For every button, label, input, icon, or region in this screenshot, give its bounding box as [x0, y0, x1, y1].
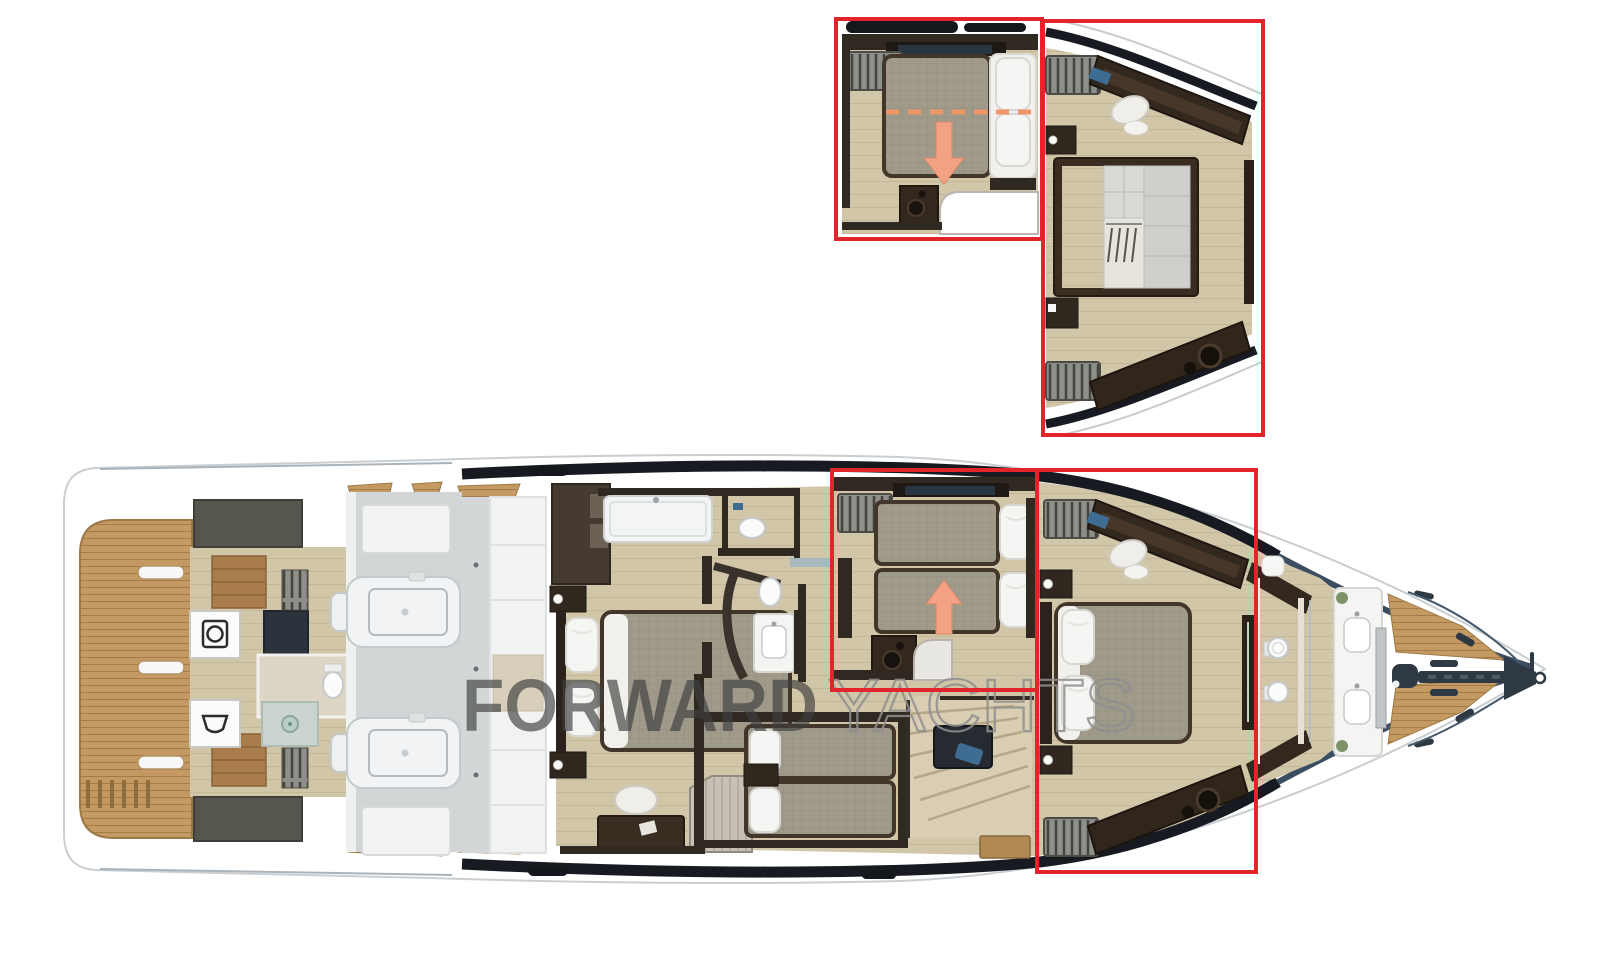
- deck-hatch: [862, 870, 896, 879]
- engine-room-locker: [362, 807, 450, 855]
- cistern: [733, 503, 743, 510]
- crew-wardrobe: [194, 797, 302, 841]
- crew-wardrobe: [194, 500, 302, 547]
- plant: [1336, 740, 1348, 752]
- shower-seat: [1262, 556, 1284, 576]
- swim-platform: [80, 520, 192, 838]
- crew-locker: [282, 748, 308, 788]
- plant: [1336, 592, 1348, 604]
- toilet-icon: [323, 664, 343, 698]
- deck-hatch: [528, 866, 568, 876]
- platform-handle: [138, 661, 184, 674]
- washing-machine: [190, 611, 240, 658]
- deck-hatch: [964, 23, 1026, 32]
- platform-handle: [138, 756, 184, 769]
- twin-bed: [876, 502, 1032, 564]
- toilet-icon: [759, 578, 781, 606]
- guest-bed: [746, 782, 894, 836]
- corridor-notch: [940, 192, 1038, 234]
- laundry-sink: [190, 700, 240, 747]
- deck-hatch: [528, 466, 568, 476]
- watermark-secondary: YACHTS: [828, 664, 1136, 747]
- crew-locker: [282, 570, 308, 610]
- engine-port: [331, 572, 460, 647]
- crew-quarters: [190, 500, 368, 841]
- windshield-base: [1376, 628, 1386, 728]
- inset-twin-convertible: [834, 17, 1044, 241]
- crew-counter: [264, 611, 308, 657]
- engine-room-locker: [362, 505, 450, 553]
- inset-master-dressing: [1041, 18, 1265, 438]
- bow-vanity: [1334, 588, 1382, 756]
- platform-handle: [138, 566, 184, 579]
- engine-starboard: [331, 713, 460, 788]
- yacht-floorplan-canvas: FORWARD YACHTS: [0, 0, 1600, 972]
- twin-closet: [838, 558, 852, 638]
- convertible-double-bed: [884, 54, 1036, 190]
- guest-nightstand: [744, 764, 778, 786]
- faucet: [653, 497, 659, 503]
- inset-nightstand: [1046, 298, 1078, 328]
- inset-nightstand: [900, 186, 938, 224]
- stair-drawer: [980, 836, 1030, 858]
- walk-in-wardrobe: [1054, 158, 1198, 296]
- toilet-icon: [739, 518, 765, 538]
- watermark: FORWARD YACHTS: [462, 664, 1136, 747]
- inset-divider: [1244, 160, 1254, 304]
- hanger-rail: [1104, 218, 1144, 288]
- desk-chair: [615, 786, 657, 814]
- deck-hatch: [846, 21, 958, 33]
- bench-seat: [1044, 818, 1098, 856]
- watermark-primary: FORWARD: [462, 664, 818, 747]
